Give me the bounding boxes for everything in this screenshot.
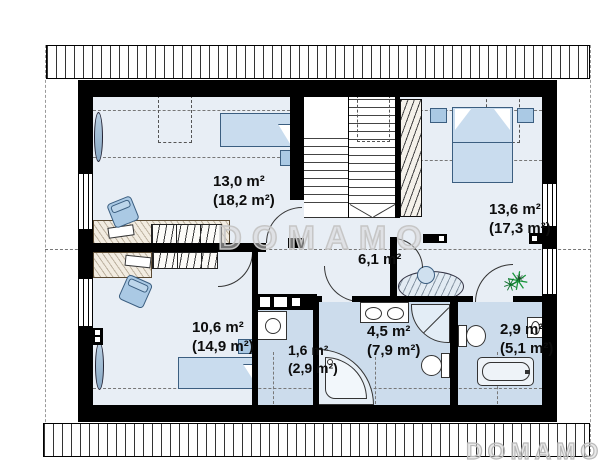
dressing-stool [417,266,435,284]
roof-eaves-bottom [43,423,590,457]
plant-stem-icon: ✳ [515,274,524,285]
floor-area-value: (14,9 m²) [192,337,254,356]
wall-bath-top [352,296,450,302]
sink-basin-a [365,307,382,320]
wardrobe-bottom-bedroom [152,252,218,269]
floor-area-value: (18,2 m²) [213,191,275,210]
wall-bath-divider [450,296,458,405]
wall-bathsmall-top-left [458,296,473,302]
wall-bathsmall-top-right [513,296,542,302]
sink-basin-b [387,307,404,320]
washer-drum [265,318,281,334]
outer-wall-left [78,80,93,422]
toilet-main-tank [441,353,450,378]
floor-area-value: (7,9 m²) [367,341,420,360]
shower-diagonal [412,307,449,343]
counter-sink-a [260,297,270,307]
window-bottom-bedroom [78,278,93,327]
floor-area-value: (5,1 m²) [500,339,553,358]
area-value: 13,6 m² [489,200,541,219]
radiator-inset-a [95,330,100,335]
vent-stub-bedroomright [423,234,447,243]
window-left-bedroom [78,173,93,230]
window-right-bedroom-b [542,248,557,295]
vent-inset [439,236,444,241]
nightstand-right-b [517,108,534,123]
mirror-bottom-bedroom [95,342,104,390]
wall-bath-top-left [313,296,322,302]
floor-area-value: (2,9 m²) [288,359,338,377]
duvet-line [453,142,512,143]
roof-window-left [158,95,192,143]
double-sink-vanity [360,302,409,323]
bathtub-small [477,357,534,386]
area-value: 6,1 m² [358,250,401,269]
outer-wall-top [78,80,557,97]
kneewall-line-c [93,157,290,158]
counter-sink-c [292,298,300,306]
shower-cabin [411,304,450,343]
bathtub-small-faucet [525,370,530,374]
wardrobe-left-bedroom [151,224,222,244]
bed-bottom-bedroom [178,357,258,389]
wall-bedroomleft-stairs [290,97,304,200]
stairs-divider [348,97,349,218]
wall-door-post [288,238,304,248]
pillow-left [455,109,471,130]
wall-stairs-right [395,97,400,218]
toilet-small-bowl [466,325,486,347]
roof-eaves-top [46,45,590,79]
kneewall-vline-laundry [273,352,274,404]
counter-sink-b [274,297,287,307]
wall-bottombedroom-right [252,252,258,405]
bathtub-small-basin [482,362,530,381]
bed-left-bedroom [220,113,293,147]
floor-area-value: (17,3 m²) [489,219,551,238]
closet-right-bedroom [400,99,422,217]
roof-window-stairs [357,95,390,142]
nightstand-right-a [430,108,447,123]
mirror-left-bedroom [94,112,103,162]
bed-right-bedroom [452,107,513,183]
outer-wall-bottom [78,405,557,422]
washing-machine [257,311,287,340]
stairs-flight-left [304,138,348,204]
area-value: 10,6 m² [192,318,244,337]
area-value: 4,5 m² [367,322,410,341]
toilet-main-bowl [421,355,442,376]
wall-bedroomleft-bottom [93,243,266,252]
radiator-left-wall [93,328,103,345]
area-value: 2,9 m² [500,320,543,339]
floor-plan: ✳ ✳ ✳ [0,0,616,470]
area-value: 13,0 m² [213,172,265,191]
pillow-right [494,109,510,130]
area-value: 1,6 m² [288,341,328,359]
radiator-inset-b [95,337,100,342]
laundry-counter [255,294,317,310]
